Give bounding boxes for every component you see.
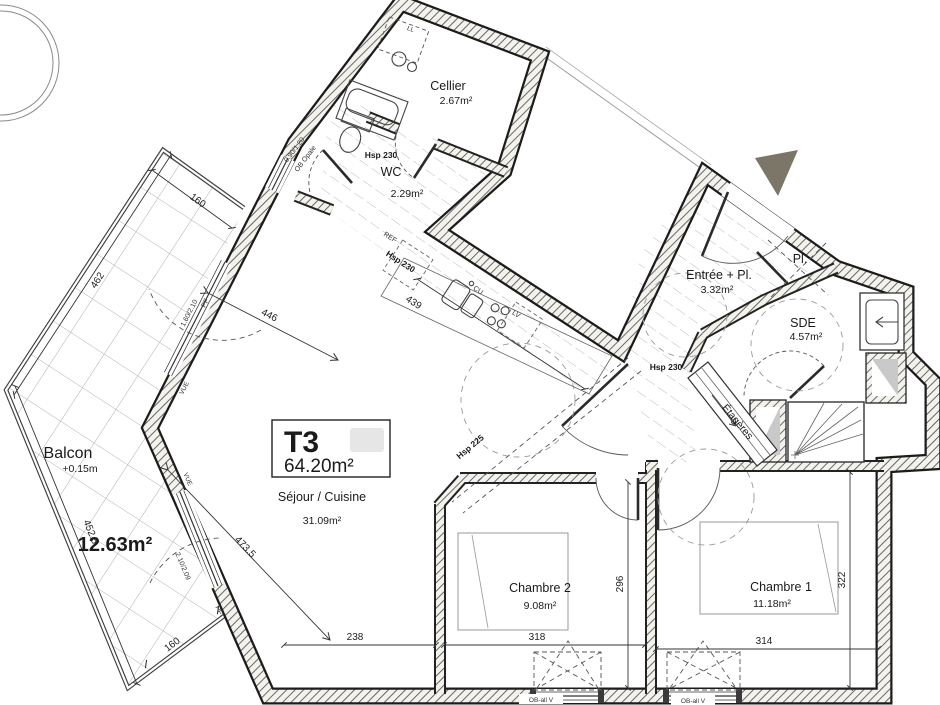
label-cellier: Cellier (430, 79, 465, 93)
label-ch1-area: 11.18m² (753, 598, 791, 610)
label-wc-area: 2.29m² (391, 188, 424, 200)
dim-314: 314 (756, 636, 773, 647)
turning-circle-sde (751, 299, 843, 391)
label-ch1: Chambre 1 (750, 580, 812, 594)
duct-shaft-right (866, 353, 906, 403)
label-pl: Pl. (793, 252, 808, 266)
door-sde (744, 351, 824, 398)
door-chambre1 (658, 468, 720, 530)
unit-type: T3 (284, 426, 319, 459)
opening-ob-ch1: OB-all V (681, 698, 706, 705)
unit-area: 64.20m² (284, 456, 354, 477)
label-entree: Entrée + Pl. (686, 268, 752, 282)
label-entree-hsp: Hsp 230 (650, 362, 683, 372)
opening-ob-ch2: OB-all V (529, 697, 554, 704)
entrance-arrow-marker (755, 150, 798, 196)
label-balcon-level: +0.15m (62, 463, 98, 475)
label-wc-hsp: Hsp 230 (365, 150, 398, 160)
wardrobe-ch1 (667, 641, 740, 690)
dim-473-5: 473.5 (232, 534, 258, 560)
label-sde: SDE (790, 316, 816, 330)
water-heater-icon-small (408, 63, 417, 72)
dim-439: 439 (403, 294, 423, 313)
dim-238: 238 (347, 632, 364, 643)
label-sejour-area: 31.09m² (303, 515, 342, 527)
label-entree-area: 3.32m² (701, 284, 734, 296)
corner-circle-marker (0, 5, 59, 121)
floor-plan-page: T3 64.20m² Cellier 2.67m² Hsp 230 WC 2.2… (0, 0, 940, 705)
label-soffit-hsp: Hsp 225 (454, 432, 486, 461)
washbasin (860, 293, 904, 350)
label-ch2-area: 9.08m² (524, 600, 557, 612)
label-wc: WC (381, 165, 402, 179)
balcony (6, 150, 244, 688)
dim-318: 318 (529, 632, 546, 643)
water-heater-icon (392, 52, 406, 66)
floor-plan-svg: T3 64.20m² Cellier 2.67m² Hsp 230 WC 2.2… (0, 0, 940, 705)
label-balcon: Balcon (44, 445, 93, 462)
dim-296: 296 (615, 575, 626, 592)
roof-edge-lines (541, 47, 711, 172)
label-ll: LL (406, 25, 416, 34)
dim-322: 322 (837, 571, 848, 588)
balcony-floor-tiles (6, 150, 244, 688)
shower (788, 402, 864, 462)
label-sde-area: 4.57m² (790, 331, 823, 343)
wardrobe-ch2 (534, 641, 601, 690)
unit-title-box: T3 64.20m² (272, 420, 390, 477)
label-sejour: Séjour / Cuisine (278, 490, 366, 504)
dim-446: 446 (259, 307, 279, 325)
label-cellier-area: 2.67m² (440, 95, 473, 107)
door-chambre2 (596, 478, 638, 520)
label-ch2: Chambre 2 (509, 581, 571, 595)
